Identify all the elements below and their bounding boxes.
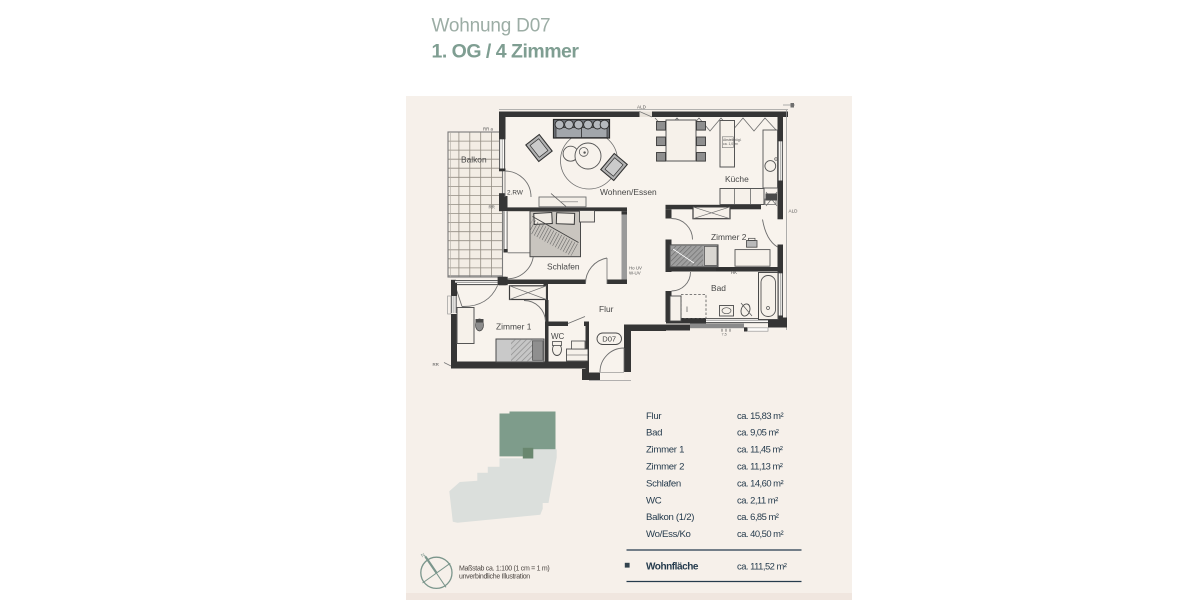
- svg-text:ca. 15,83 m²: ca. 15,83 m²: [737, 410, 783, 421]
- svg-text:WC: WC: [646, 495, 662, 506]
- svg-text:ca. 6,85 m²: ca. 6,85 m²: [737, 511, 779, 522]
- svg-text:Küche: Küche: [725, 174, 749, 184]
- svg-text:Flur: Flur: [599, 304, 614, 314]
- svg-text:RR: RR: [433, 362, 439, 367]
- svg-text:Zimmer 2: Zimmer 2: [646, 462, 684, 473]
- svg-text:Wohnung D07: Wohnung D07: [432, 16, 551, 37]
- svg-text:Schlafen: Schlafen: [547, 262, 580, 272]
- svg-text:Flur: Flur: [646, 411, 662, 422]
- svg-text:Wo/Ess/Ko: Wo/Ess/Ko: [646, 529, 691, 540]
- svg-text:ca. 11,13 m²: ca. 11,13 m²: [737, 461, 783, 472]
- svg-text:Zimmer 1: Zimmer 1: [496, 321, 532, 331]
- svg-text:Schlafen: Schlafen: [646, 478, 681, 489]
- svg-text:7,5: 7,5: [722, 333, 727, 337]
- svg-text:RR: RR: [489, 204, 495, 209]
- svg-text:ca. 40,50 m²: ca. 40,50 m²: [737, 528, 783, 539]
- svg-text:Bad: Bad: [711, 283, 726, 293]
- svg-text:2.RW: 2.RW: [507, 190, 524, 197]
- svg-text:ca. 11,45 m²: ca. 11,45 m²: [737, 444, 783, 455]
- svg-text:ALD: ALD: [637, 105, 647, 110]
- svg-text:ca. 111,52 m²: ca. 111,52 m²: [737, 561, 787, 572]
- svg-text:1. OG / 4 Zimmer: 1. OG / 4 Zimmer: [432, 41, 580, 63]
- svg-text:Balkon (1/2): Balkon (1/2): [646, 512, 694, 523]
- svg-text:ALD: ALD: [789, 209, 799, 214]
- svg-text:unverbindliche Illustration: unverbindliche Illustration: [459, 574, 530, 581]
- svg-text:ca. 9,05 m²: ca. 9,05 m²: [737, 427, 779, 438]
- svg-text:ca. 2,11 m²: ca. 2,11 m²: [737, 494, 778, 505]
- svg-text:Zimmer 2: Zimmer 2: [711, 232, 747, 242]
- svg-text:HK: HK: [731, 270, 737, 275]
- svg-text:Wohnfläche: Wohnfläche: [646, 562, 699, 573]
- svg-text:RR a: RR a: [483, 127, 494, 132]
- svg-text:ca. 1,0 m²: ca. 1,0 m²: [723, 142, 739, 146]
- svg-text:Balkon: Balkon: [461, 155, 487, 165]
- svg-text:Zimmer 1: Zimmer 1: [646, 445, 684, 456]
- svg-text:WC: WC: [551, 332, 565, 341]
- svg-text:ca. 14,60 m²: ca. 14,60 m²: [737, 477, 783, 488]
- svg-text:Maßstab ca. 1:100 (1 cm = 1 m): Maßstab ca. 1:100 (1 cm = 1 m): [459, 565, 549, 572]
- svg-text:Wohnen/Essen: Wohnen/Essen: [600, 187, 657, 197]
- svg-text:D07: D07: [602, 335, 616, 344]
- svg-text:Bad: Bad: [646, 428, 662, 439]
- svg-text:W-UV: W-UV: [629, 271, 641, 276]
